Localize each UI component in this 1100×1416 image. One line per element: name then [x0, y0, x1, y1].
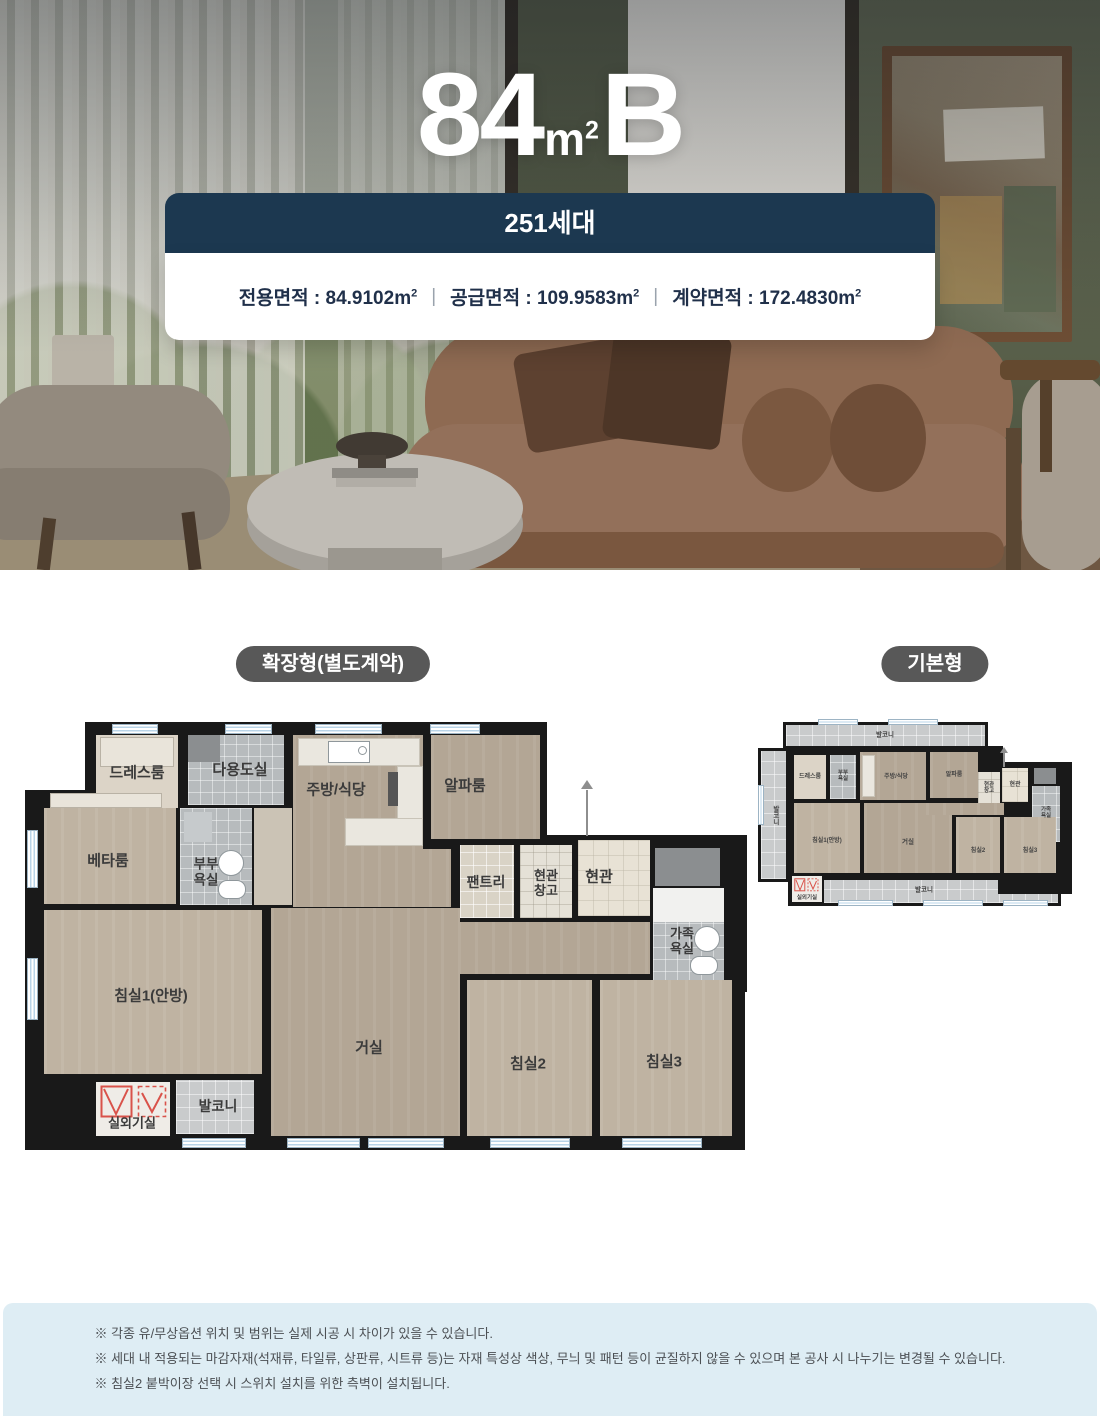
room-label-alpha: 알파룸	[444, 777, 485, 794]
window	[490, 1138, 570, 1148]
hallway-floor	[254, 808, 292, 905]
note-line: ※ 침실2 붙박이장 선택 시 스위치 설치를 위한 측벽이 설치됩니다.	[94, 1371, 1005, 1396]
note-line: ※ 각종 유/무상옵션 위치 및 범위는 실제 시공 시 차이가 있을 수 있습…	[94, 1321, 1005, 1346]
window	[622, 1138, 702, 1148]
window	[112, 724, 158, 734]
room-label-outdoor: 실외기실	[797, 896, 817, 902]
family-bath-toilet	[690, 956, 718, 975]
room-label-beta: 베타룸	[87, 852, 128, 869]
entry-arrow	[1003, 753, 1005, 767]
family-bath-tub	[653, 888, 724, 922]
beta-closet	[50, 793, 162, 808]
entry-arrow	[586, 790, 588, 836]
extended-type-badge[interactable]: 확장형(별도계약)	[236, 646, 430, 682]
kitchen-island	[345, 818, 423, 846]
window	[182, 1138, 246, 1148]
room-label-entry: 현관	[1009, 782, 1020, 788]
title-number: 84	[417, 49, 542, 181]
window	[758, 785, 764, 825]
room-living-floor	[271, 908, 460, 1136]
room-label-kitchen: 주방/식당	[306, 781, 365, 798]
room-label-bed3: 침실3	[1023, 848, 1037, 854]
households-banner: 251세대	[165, 193, 935, 253]
entry-arrow-head	[1000, 747, 1008, 753]
window	[1003, 900, 1048, 906]
dress-closet	[100, 737, 174, 767]
outdoor-unit-marks	[100, 1085, 168, 1119]
area-exclusive: 전용면적 : 84.9102m2	[239, 283, 418, 310]
room-label-alpha: 알파룸	[946, 772, 963, 778]
room-label-family-bath: 가족 욕실	[670, 927, 694, 957]
room-label-entry: 현관	[585, 868, 613, 885]
room-label-utility: 다용도실	[212, 761, 267, 778]
floor-plan-extended: 드레스룸 다용도실 주방/식당 알파룸 베타룸 부부 욕실 팬트리 현관 창고 …	[22, 712, 750, 1152]
notes-list: ※ 각종 유/무상옵션 위치 및 범위는 실제 시공 시 차이가 있을 수 있습…	[94, 1321, 1005, 1396]
room-label-living: 거실	[355, 1039, 383, 1056]
window	[27, 830, 38, 888]
room-bed2-floor	[956, 817, 1000, 873]
window	[225, 724, 272, 734]
master-bath-sink	[218, 850, 244, 876]
area-card: 전용면적 : 84.9102m2 | 공급면적 : 109.9583m2 | 계…	[165, 253, 935, 340]
room-label-balcony: 발코니	[876, 733, 894, 740]
room-bed3-floor	[1004, 817, 1056, 873]
room-label-balcony: 발코니	[199, 1098, 238, 1114]
entry-arrow-head	[581, 780, 593, 789]
kitchen-appliance	[388, 772, 398, 806]
window	[888, 719, 938, 725]
room-label-balcony: 발코니	[771, 805, 778, 825]
title-unit: m2	[544, 113, 599, 165]
room-label-bed1: 침실1(안방)	[812, 838, 841, 844]
room-label-pantry: 팬트리	[467, 874, 506, 890]
room-label-kitchen: 주방/식당	[884, 774, 908, 780]
window	[923, 900, 983, 906]
page: 84m2B 251세대 전용면적 : 84.9102m2 | 공급면적 : 10…	[0, 0, 1100, 1416]
room-label-bed3: 침실3	[646, 1053, 682, 1070]
room-label-bed2: 침실2	[510, 1055, 546, 1072]
room-label-master-bath: 부부 욕실	[838, 771, 848, 783]
area-contract: 계약면적 : 172.4830m2	[672, 283, 861, 310]
room-label-entry-storage: 현관 창고	[984, 783, 994, 795]
utility-duct	[188, 735, 220, 762]
unit-type-title: 84m2B	[0, 56, 1100, 174]
entry-duct	[655, 848, 720, 886]
note-line: ※ 세대 내 적용되는 마감자재(석재류, 타일류, 상판류, 시트류 등)는 …	[94, 1346, 1005, 1371]
room-label-master-bath: 부부 욕실	[194, 856, 219, 887]
room-label-outdoor: 실외기실	[108, 1117, 156, 1132]
window	[315, 724, 382, 734]
separator: |	[653, 286, 658, 308]
corridor-floor	[926, 803, 1004, 815]
outdoor-unit-marks	[794, 878, 820, 892]
area-supply: 공급면적 : 109.9583m2	[450, 283, 639, 310]
window	[818, 719, 858, 725]
kitchen-faucet	[358, 746, 367, 755]
dining-floor	[293, 849, 451, 907]
room-label-entry-storage: 현관 창고	[534, 869, 558, 899]
room-label-family-bath: 가족 욕실	[1041, 808, 1051, 820]
room-label-balcony: 발코니	[915, 888, 933, 895]
corridor-floor	[458, 922, 650, 974]
room-label-dress: 드레스룸	[109, 764, 164, 781]
kitchen-counter	[862, 755, 875, 797]
window	[838, 900, 893, 906]
window	[287, 1138, 360, 1148]
room-label-bed2: 침실2	[971, 848, 985, 854]
separator: |	[431, 286, 436, 308]
title-letter: B	[601, 49, 683, 181]
window	[430, 724, 480, 734]
room-label-dress: 드레스룸	[799, 774, 821, 780]
households-count: 251세대	[504, 208, 595, 238]
window	[27, 958, 38, 1020]
master-bath-toilet	[218, 880, 246, 899]
entry-duct	[1034, 768, 1056, 784]
room-label-bed1: 침실1(안방)	[114, 987, 188, 1004]
master-bath-shower	[184, 812, 212, 842]
basic-type-badge[interactable]: 기본형	[881, 646, 988, 682]
window	[368, 1138, 444, 1148]
room-label-living: 거실	[902, 840, 914, 847]
floor-plan-basic: 발코니 발코니 발코니 드레스룸 부부 욕실 주방/식당 알파룸 현관 창고 현…	[758, 715, 1076, 911]
family-bath-sink	[694, 926, 720, 952]
